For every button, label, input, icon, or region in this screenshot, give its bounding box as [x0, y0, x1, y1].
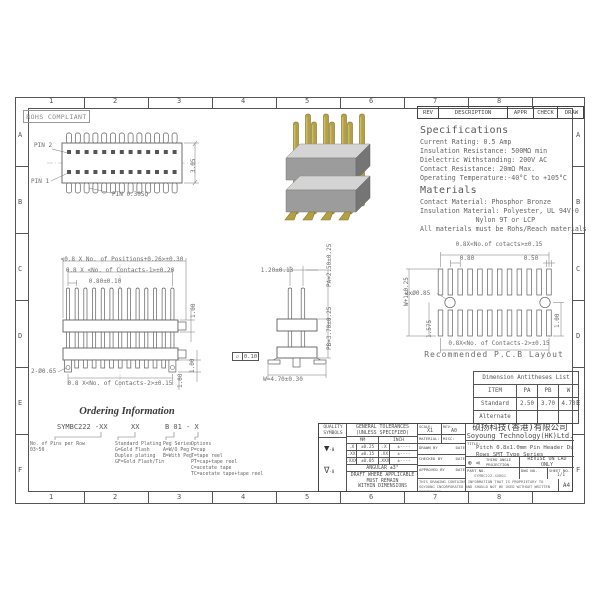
- zone-label: A: [18, 131, 22, 139]
- draw-col-header: DRAW: [557, 107, 585, 118]
- ordering-code-base: SYMBC222 -XX: [57, 423, 108, 431]
- pcb-row-offset-dim: 1.00: [555, 314, 562, 328]
- dim-cell: [537, 411, 558, 423]
- zone-label: C: [576, 265, 580, 273]
- drawing-title: Pitch 0.8x1.0mm Pin Header Dual Rows SMT…: [476, 445, 574, 457]
- materials-title: Materials: [420, 185, 477, 196]
- flatness-symbol-icon: ▱: [233, 353, 243, 360]
- flatness-tolerance-frame: ▱ 0.10: [232, 352, 259, 361]
- zone-label: 5: [305, 97, 309, 105]
- materials-text: Contact Material: Phosphor Bronze Insula…: [420, 198, 587, 234]
- zone-label: 6: [369, 97, 373, 105]
- dim-cell: Standard: [474, 398, 516, 410]
- title-block: QUALITY SYMBOLS ▼-0 ∇-0 GENERAL TOLERANC…: [318, 423, 573, 492]
- proprietary-disclaimer: THIS DRAWING CONTAINS INFORMATION THAT I…: [418, 479, 558, 491]
- side-pin-pitch-dim: 1.20±0.13: [261, 268, 294, 275]
- dim-table-alternate-row: Alternate: [474, 410, 578, 423]
- zone-tick: [573, 233, 585, 234]
- zone-label: 7: [433, 97, 437, 105]
- pin1-label: PIN 1: [31, 179, 49, 186]
- specifications-text: Current Rating: 0.5 Amp Insulation Resis…: [420, 138, 567, 183]
- front-positions-dim: <0.8 X No. of Positions+0.26>±0.30: [61, 257, 184, 264]
- zone-label: A: [576, 131, 580, 139]
- projection-label: THIRD ANGLE PROJECTION: [486, 458, 511, 467]
- date-label: DATE: [456, 456, 465, 461]
- tol-cell: .X: [347, 444, 357, 451]
- specifications-title: Specifications: [420, 125, 509, 136]
- pcb-pad-width-dim: 0.50: [524, 256, 538, 263]
- pcb-layout-caption: Recommended P.C.B Layout: [424, 351, 564, 360]
- front-contacts1-dim: 0.8 X <No. of Contacts-1>±0.20: [66, 268, 174, 275]
- drawing-title-cell: TITLE: Pitch 0.8x1.0mm Pin Header Dual R…: [466, 441, 574, 457]
- zone-label: E: [576, 399, 580, 407]
- zone-label: E: [18, 399, 22, 407]
- misc-label: MISC:: [443, 436, 454, 441]
- zone-tick: [15, 434, 28, 435]
- zone-label: B: [18, 198, 22, 206]
- side-pa-dim: PA=2.50±0.25: [327, 244, 334, 287]
- zone-label: 6: [369, 493, 373, 501]
- zone-tick: [84, 492, 85, 504]
- scale-cell: SCALE: X1: [418, 424, 442, 435]
- zone-tick: [15, 300, 28, 301]
- zone-label: C: [18, 265, 22, 273]
- ordering-information-title: Ordering Information: [79, 406, 174, 417]
- zone-tick: [404, 97, 405, 108]
- dim-cell: 2.50: [516, 398, 537, 410]
- zone-tick: [532, 492, 533, 504]
- pcb-total-width-dim: W+1±0.25: [404, 277, 411, 306]
- rev-col-header: REV: [418, 107, 438, 118]
- dim-table-title: Dimension Antitheses List: [474, 372, 578, 384]
- sheet-no-cell: SHEET NO. 1/1: [548, 468, 574, 479]
- quality-symbol-sub: -0: [329, 469, 334, 474]
- dim-table-header: W: [558, 385, 578, 397]
- pcb-top-dim: 0.8X<No.of cotacts>±0.15: [456, 242, 543, 249]
- zone-label: 4: [241, 493, 245, 501]
- revise-on-cad-note: REVISE ON CAD ONLY: [520, 457, 574, 468]
- scale-value: X1: [427, 428, 433, 434]
- revision-table: REV DESCRIPTION APPR CHECK DRAW: [417, 106, 584, 119]
- quality-symbol-triangle-icon: ▼-0: [324, 444, 334, 454]
- tol-cell: ±0.05: [357, 458, 379, 465]
- tol-cell: .XXX: [379, 458, 390, 465]
- zone-label: B: [576, 198, 580, 206]
- tol-cell: ±----: [390, 444, 418, 451]
- zone-label: F: [18, 466, 22, 474]
- front-foot-height-dim: 1.00: [190, 359, 197, 373]
- rev-cell: REV: A0: [442, 424, 466, 435]
- ordering-pins-per-row-note: No. of Pins per Row 03~50: [30, 442, 85, 454]
- dimension-antitheses-table: Dimension Antitheses List ITEM PA PB W S…: [473, 371, 579, 424]
- description-col-header: DESCRIPTION: [438, 107, 507, 118]
- checked-by-cell: CHECKED BY DATE: [418, 455, 466, 466]
- ordering-plating-note: Standard Plating G=Gold Flash Duplex pla…: [115, 442, 164, 466]
- zone-tick: [468, 97, 469, 108]
- dim-cell: Alternate: [474, 411, 516, 423]
- approved-by-cell: APPROVED BY DATE: [418, 466, 466, 479]
- pcb-1575-dim: 1.575: [427, 320, 434, 338]
- zone-label: 5: [305, 493, 309, 501]
- ordering-peg-series-note: Peg Series A=W/O Peg B=With Peg: [163, 442, 192, 460]
- dim-cell: 3.70: [537, 398, 558, 410]
- pcb-pad-pitch-dim: 0.80: [460, 256, 474, 263]
- zone-label: 2: [113, 97, 117, 105]
- zone-tick: [573, 166, 585, 167]
- tol-cell: .XX: [347, 451, 357, 458]
- side-pb-dim: PB=3.70±0.25: [327, 307, 334, 350]
- zone-label: 7: [433, 493, 437, 501]
- zone-tick: [276, 97, 277, 108]
- zone-tick: [15, 166, 28, 167]
- check-col-header: CHECK: [533, 107, 557, 118]
- tol-cell: ±0.15: [357, 451, 379, 458]
- front-tail-height-dim: 1.00: [178, 374, 185, 388]
- company-name-en: Soyoung Technology(HK)Ltd.: [466, 433, 574, 440]
- zone-tick: [532, 97, 533, 108]
- dwg-no-cell: DWG NO.: [520, 468, 548, 479]
- dwg-no-label: DWG NO.: [521, 468, 537, 473]
- dim-table-standard-row: Standard 2.50 3.70 4.70: [474, 397, 578, 410]
- pin2-label: PIN 2: [34, 143, 52, 150]
- tol-cell: ±0.25: [357, 444, 379, 451]
- draft-note: DRAFT WHERE APPLICABLE MUST REMAIN WITHI…: [347, 472, 418, 491]
- material-cell: MATERIAL:: [418, 435, 442, 444]
- zone-tick: [340, 97, 341, 108]
- zone-label: 8: [497, 97, 501, 105]
- zone-tick: [15, 367, 28, 368]
- drawn-by-label: DRAWN BY: [419, 445, 438, 450]
- top-view-height-dim: 3.05: [191, 159, 198, 173]
- ordering-code-plating: XX: [131, 423, 139, 431]
- paper-size-label: A4: [558, 479, 574, 491]
- part-no-value: SYMBC222-XXB01: [474, 473, 506, 478]
- dim-table-header: ITEM: [474, 385, 516, 397]
- tol-cell: ±----: [390, 451, 418, 458]
- connector-isometric-view: [256, 108, 406, 238]
- part-no-cell: PART NO. SYMBC222-XXB01: [466, 468, 520, 479]
- date-label: DATE: [456, 467, 465, 472]
- misc-cell: MISC:: [442, 435, 466, 444]
- zone-tick: [212, 492, 213, 504]
- zone-label: D: [18, 332, 22, 340]
- drawn-by-cell: DRAWN BY DATE: [418, 444, 466, 455]
- angular-tolerance: ANGULAR ±3°: [347, 465, 418, 472]
- zone-label: 3: [177, 493, 181, 501]
- front-contacts2-dim: 0.8 X<No. of Contacts-2>±0.15: [68, 381, 173, 388]
- quality-symbols-header: QUALITY SYMBOLS: [319, 424, 347, 438]
- zone-tick: [573, 367, 585, 368]
- zone-label: 1: [49, 97, 53, 105]
- quality-symbol-nabla-icon: ∇-0: [324, 466, 334, 476]
- pin-size-label: PIN 0.30SQ: [112, 192, 148, 199]
- pcb-bottom-dim: 0.8X<No. of Contacts-2>±0.15: [448, 341, 549, 348]
- zone-tick: [148, 492, 149, 504]
- tol-cell: .X: [379, 444, 390, 451]
- zone-label: 2: [113, 493, 117, 501]
- zone-tick: [148, 97, 149, 108]
- dim-cell: 4.70: [558, 398, 578, 410]
- ordering-options-note: Options P=cap T=tape reel PT=cap+tape re…: [191, 442, 263, 478]
- general-tolerances-header: GENERAL TOLERANCES (UNLESS SPECIFIED): [347, 424, 418, 437]
- side-width-dim: W=4.70±0.30: [263, 377, 303, 384]
- sheet-no-value: 1/1: [557, 473, 565, 478]
- checked-by-label: CHECKED BY: [419, 456, 442, 461]
- zone-tick: [573, 300, 585, 301]
- zone-tick: [15, 233, 28, 234]
- front-pitch-dim: 0.80±0.10: [89, 279, 122, 286]
- material-label: MATERIAL:: [419, 436, 440, 441]
- quality-symbol-sub: -0: [329, 447, 334, 452]
- dim-table-header: PA: [516, 385, 537, 397]
- appr-col-header: APPR: [507, 107, 533, 118]
- mm-column-header: MM: [347, 437, 379, 444]
- zone-label: D: [576, 332, 580, 340]
- zone-tick: [404, 492, 405, 504]
- inch-column-header: INCH: [379, 437, 418, 444]
- zone-tick: [84, 97, 85, 108]
- date-label: DATE: [456, 445, 465, 450]
- third-angle-projection-icon: ⊕ ⊲: [468, 459, 480, 467]
- rohs-compliant-badge: ROHS COMPLIANT: [23, 110, 90, 123]
- rev-value: A0: [451, 428, 457, 434]
- tol-cell: .XX: [379, 451, 390, 458]
- zone-label: 8: [497, 493, 501, 501]
- tol-cell: .XXX: [347, 458, 357, 465]
- upper-insulator-block: [286, 144, 370, 180]
- dim-table-header-row: ITEM PA PB W: [474, 384, 578, 397]
- zone-tick: [276, 492, 277, 504]
- dim-cell: [558, 411, 578, 423]
- zone-label: 1: [49, 493, 53, 501]
- dim-cell: [516, 411, 537, 423]
- flatness-value: 0.10: [243, 353, 258, 360]
- zone-tick: [468, 492, 469, 504]
- zone-label: 4: [241, 97, 245, 105]
- company-cell: 硕扬科技(香港)有限公司 Soyoung Technology(HK)Ltd.: [466, 424, 574, 441]
- ordering-code-options: B 01 - X: [165, 423, 199, 431]
- lower-insulator-block: [286, 176, 370, 212]
- rohs-label: ROHS COMPLIANT: [26, 113, 86, 121]
- zone-tick: [340, 492, 341, 504]
- front-hole-dim: 2-Ø0.65: [31, 369, 56, 376]
- dim-table-header: PB: [537, 385, 558, 397]
- approved-by-label: APPROVED BY: [419, 467, 445, 472]
- engineering-drawing-page: { "sheet": { "rohs": "ROHS COMPLIANT", "…: [0, 0, 600, 600]
- zone-label: 3: [177, 97, 181, 105]
- front-body-height-dim: 1.00: [191, 304, 198, 318]
- zone-label: F: [576, 466, 580, 474]
- tol-cell: ±----: [390, 458, 418, 465]
- zone-tick: [573, 434, 585, 435]
- zone-tick: [212, 97, 213, 108]
- projection-cell: ⊕ ⊲ THIRD ANGLE PROJECTION: [466, 457, 520, 468]
